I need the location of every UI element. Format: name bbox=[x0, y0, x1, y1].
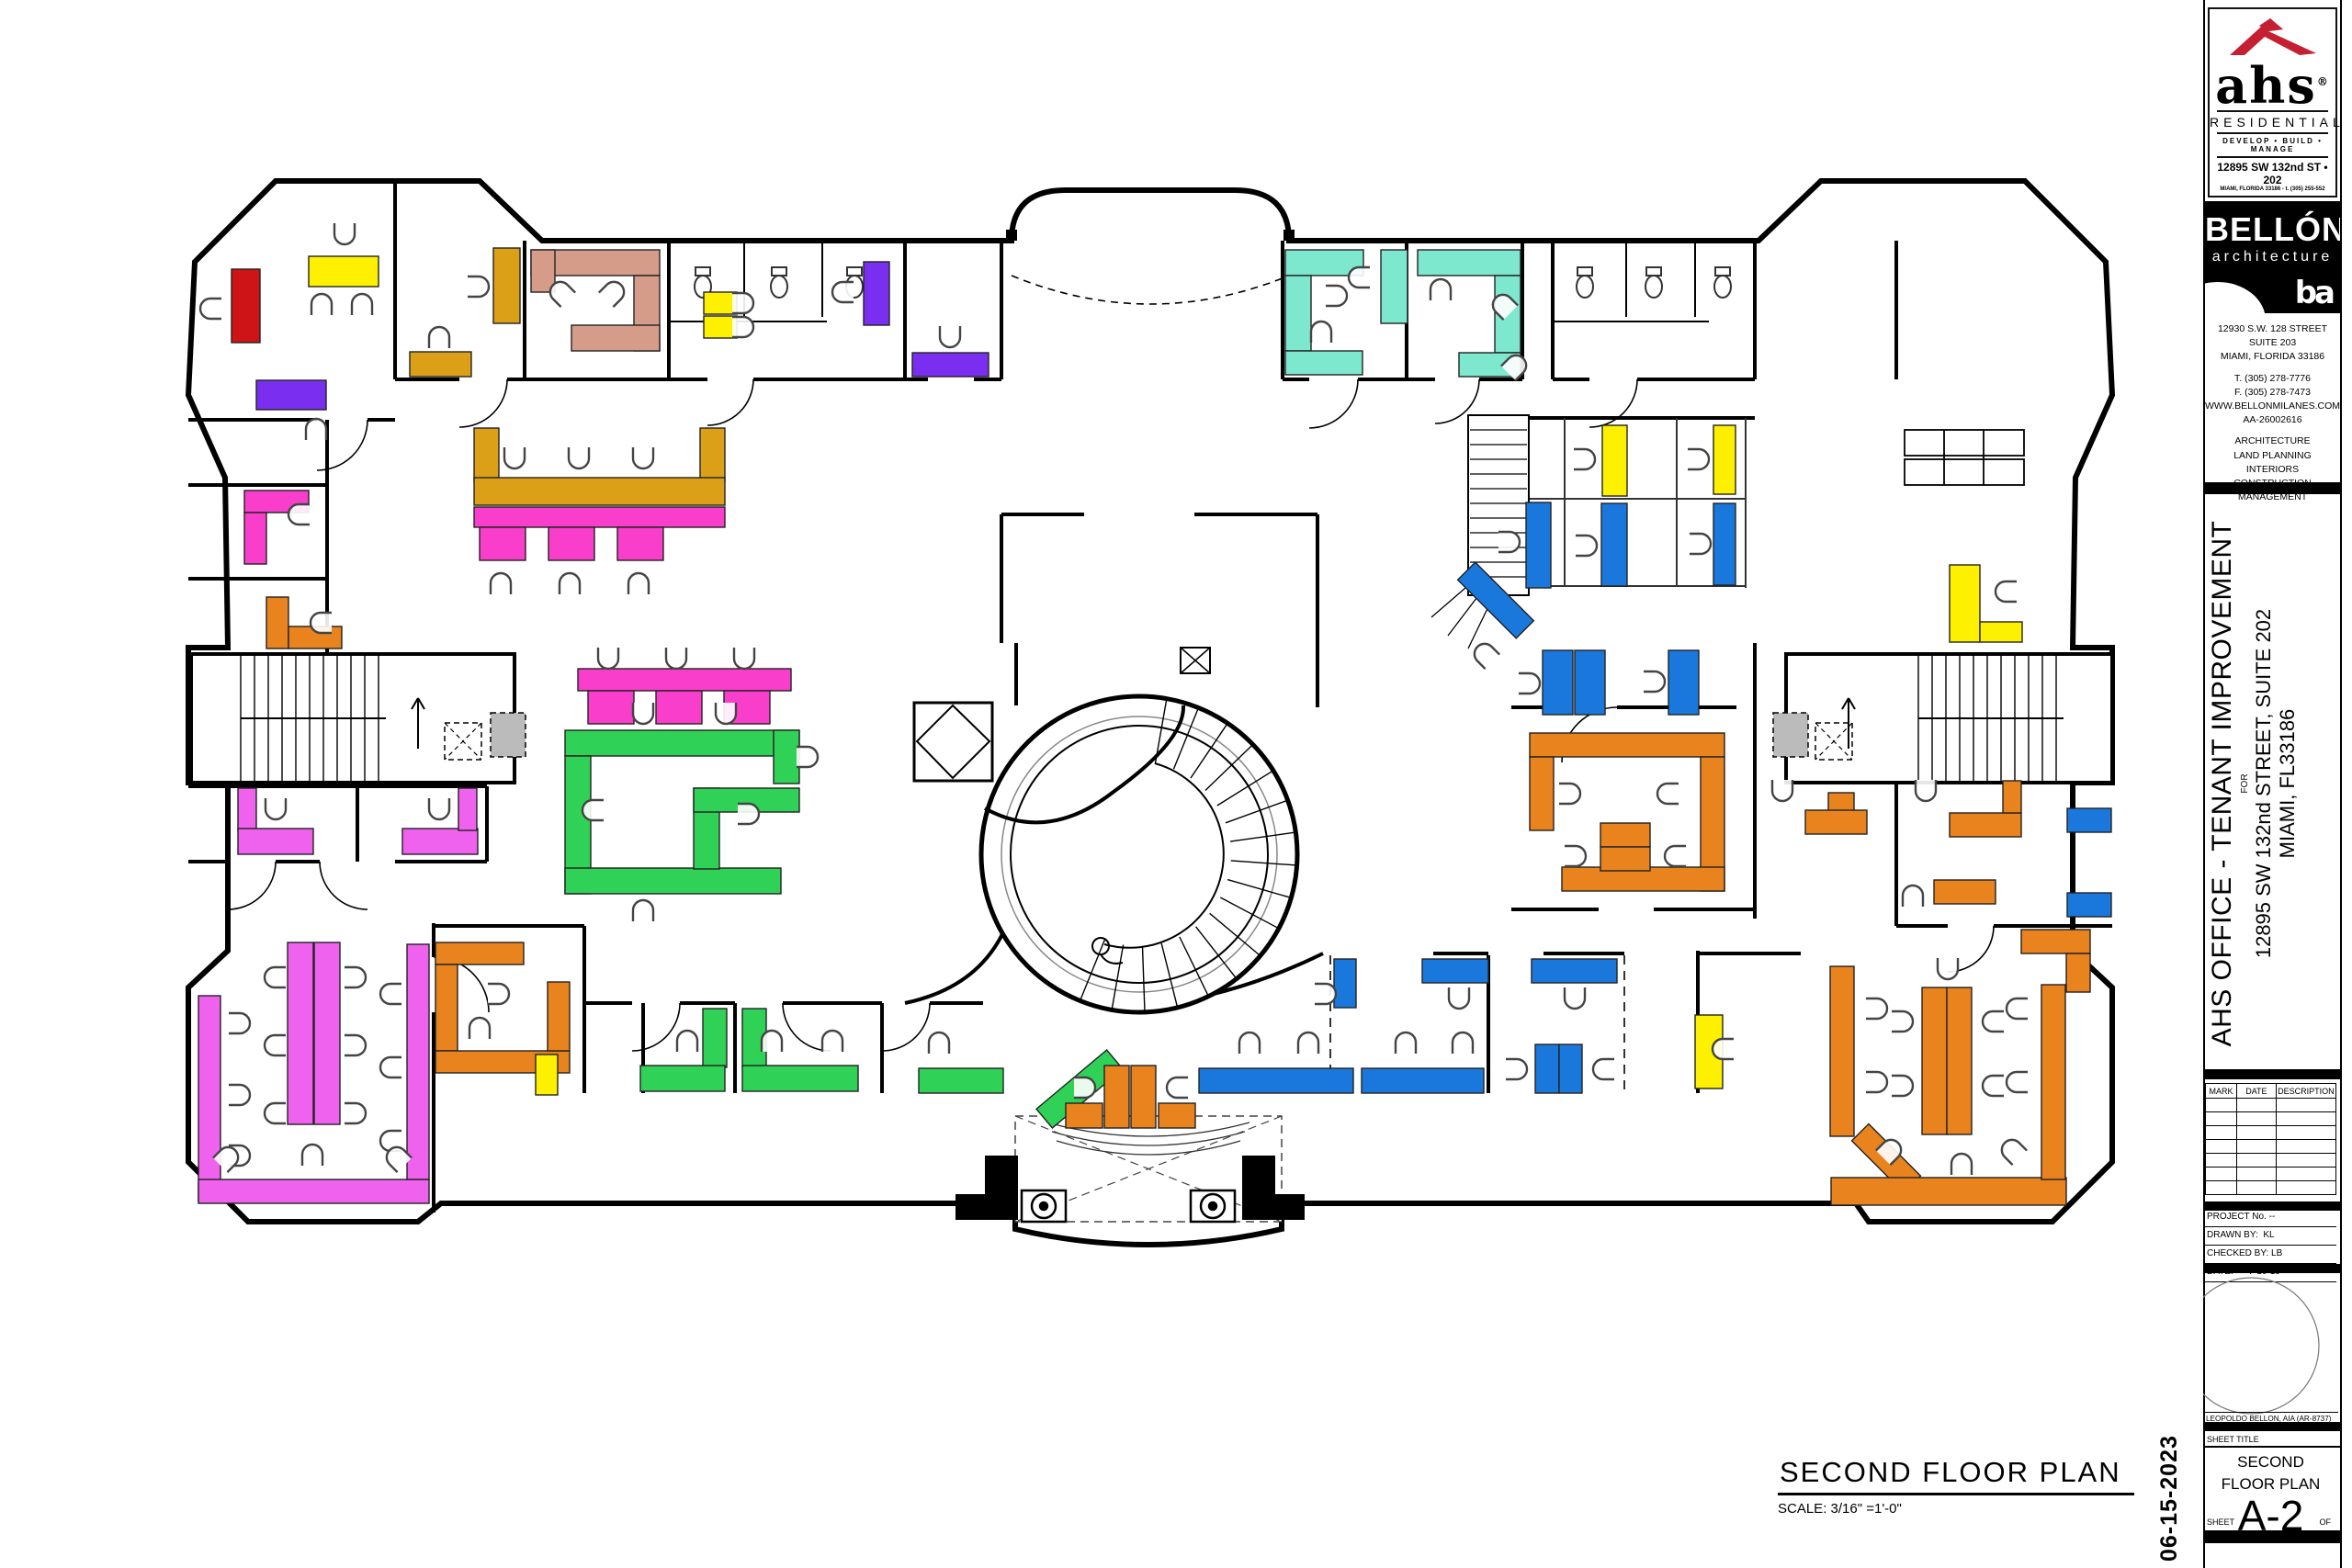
firm-subtitle: architecture bbox=[2205, 249, 2340, 265]
furniture-desk bbox=[1947, 987, 1972, 1134]
chair bbox=[429, 327, 449, 348]
chair bbox=[1396, 1032, 1416, 1054]
furniture-desk bbox=[256, 380, 326, 410]
ahs-brand: ahs® bbox=[2210, 65, 2335, 107]
chair bbox=[1349, 267, 1370, 288]
firm-svc3: INTERIORS bbox=[2205, 463, 2340, 477]
chair bbox=[429, 798, 449, 819]
revision-row bbox=[2206, 1168, 2336, 1181]
furniture-desk bbox=[244, 513, 266, 564]
revision-col-description: DESCRIPTION bbox=[2276, 1084, 2335, 1099]
furniture-desk bbox=[288, 942, 313, 1124]
chair bbox=[1315, 984, 1336, 1004]
furniture-desk bbox=[919, 1068, 1003, 1093]
furniture-desk bbox=[700, 428, 725, 481]
chair bbox=[1239, 1032, 1260, 1054]
ahs-logo: ahs® RESIDENTIAL DEVELOP • BUILD • MANAG… bbox=[2208, 7, 2337, 197]
chair bbox=[1951, 1154, 1972, 1175]
chair bbox=[200, 299, 221, 319]
chair bbox=[345, 1035, 366, 1055]
furniture-desk bbox=[1526, 502, 1551, 588]
furniture-desk bbox=[1532, 959, 1617, 983]
bellon-logo: BELLÓN architecture ba bbox=[2205, 201, 2340, 313]
ahs-tagline: DEVELOP • BUILD • MANAGE bbox=[2210, 137, 2335, 153]
chair bbox=[1498, 532, 1520, 552]
furniture-desk bbox=[1830, 966, 1854, 1136]
project-number: PROJECT No. -- bbox=[2205, 1209, 2336, 1227]
furniture-desk bbox=[2067, 893, 2111, 917]
chair bbox=[1690, 534, 1711, 554]
print-date: 06-15-2023 bbox=[2156, 1435, 2183, 1562]
firm-svc1: ARCHITECTURE bbox=[2205, 434, 2340, 448]
furniture-desk bbox=[2041, 985, 2065, 1179]
chair bbox=[1866, 1072, 1887, 1092]
chair bbox=[628, 573, 649, 594]
furniture-desk bbox=[474, 478, 725, 505]
firm-web: WWW.BELLONMILANES.COM bbox=[2205, 400, 2340, 413]
furniture-desk bbox=[238, 829, 313, 854]
furniture-desk bbox=[402, 829, 478, 854]
furniture-desk bbox=[238, 788, 256, 830]
divider-bar bbox=[2203, 1264, 2340, 1273]
chair bbox=[1983, 1076, 2004, 1096]
revision-row bbox=[2206, 1181, 2336, 1195]
sheet-label: SHEET bbox=[2207, 1517, 2234, 1527]
furniture-desk bbox=[617, 527, 663, 560]
furniture-desk bbox=[565, 730, 799, 756]
furniture-desk bbox=[1362, 1068, 1484, 1093]
chair bbox=[1644, 671, 1665, 692]
chair bbox=[1565, 987, 1585, 1009]
furniture-desk bbox=[480, 527, 526, 560]
furniture-desk bbox=[2021, 930, 2090, 953]
chair bbox=[1713, 1039, 1734, 1059]
revision-row bbox=[2206, 1154, 2336, 1168]
firm-fax: F. (305) 278-7473 bbox=[2205, 386, 2340, 400]
revision-col-date: DATE bbox=[2237, 1084, 2277, 1099]
furniture-desk bbox=[1950, 813, 2021, 837]
chair bbox=[1449, 987, 1469, 1009]
chair bbox=[633, 900, 653, 921]
chair bbox=[732, 317, 753, 337]
chair bbox=[302, 1145, 322, 1166]
furniture-desk bbox=[1922, 987, 1947, 1134]
project-address1: 12895 SW 132nd STREET, SUITE 202 bbox=[2252, 500, 2276, 1067]
chair bbox=[1298, 1032, 1318, 1054]
chair bbox=[1326, 286, 1347, 306]
furniture-desk bbox=[1422, 959, 1488, 983]
furniture-desk bbox=[571, 325, 660, 351]
furniture-desk bbox=[2067, 808, 2111, 832]
checked-by: CHECKED BY: LB bbox=[2205, 1246, 2336, 1264]
stairwell-left bbox=[191, 654, 526, 783]
furniture-desk bbox=[548, 527, 594, 560]
furniture-desk bbox=[1600, 823, 1650, 847]
chair bbox=[468, 276, 489, 297]
furniture-desk bbox=[435, 942, 524, 964]
chair bbox=[762, 1031, 782, 1052]
furniture-desk bbox=[407, 944, 429, 1179]
chair bbox=[1916, 780, 1936, 801]
furniture-desk bbox=[656, 691, 702, 724]
chair bbox=[1657, 784, 1679, 804]
firm-contact: 12930 S.W. 128 STREET SUITE 203 MIAMI, F… bbox=[2205, 313, 2340, 505]
project-title: AHS OFFICE - TENANT IMPROVEMENT bbox=[2207, 500, 2238, 1067]
chair bbox=[1688, 449, 1709, 469]
furniture-desk bbox=[565, 868, 781, 894]
furniture-desk bbox=[536, 1055, 558, 1095]
project-address2: MIAMI, FL33186 bbox=[2276, 500, 2300, 1067]
spiral-stair bbox=[981, 696, 1297, 1012]
furniture-desk bbox=[704, 316, 737, 338]
drawing-scale: SCALE: 3/16" =1'-0" bbox=[1778, 1501, 2134, 1517]
furniture-desk bbox=[1602, 425, 1627, 496]
sheet-title-label: SHEET TITLE bbox=[2205, 1433, 2340, 1448]
furniture-desk bbox=[774, 730, 799, 784]
chair bbox=[1311, 321, 1331, 343]
chair bbox=[1574, 449, 1595, 469]
furniture-desk bbox=[2066, 953, 2090, 992]
chair bbox=[1430, 279, 1451, 300]
chair bbox=[1074, 1077, 1095, 1098]
chair bbox=[265, 1035, 286, 1055]
chair bbox=[1938, 958, 1958, 979]
chair bbox=[633, 447, 653, 468]
chair bbox=[1559, 784, 1580, 804]
furniture-desk bbox=[912, 353, 989, 377]
furniture-desk bbox=[232, 269, 260, 343]
furniture-desk bbox=[1600, 847, 1650, 871]
chair bbox=[598, 648, 618, 669]
drawing-sheet: SECOND FLOOR PLAN SCALE: 3/16" =1'-0" 06… bbox=[0, 0, 2352, 1568]
firm-svc2: LAND PLANNING bbox=[2205, 449, 2340, 463]
chair bbox=[1565, 846, 1586, 866]
furniture-desk bbox=[1530, 757, 1554, 830]
chair bbox=[633, 703, 653, 724]
furniture-desk bbox=[1713, 503, 1736, 585]
furniture-desk bbox=[435, 964, 458, 1051]
chair bbox=[1983, 1011, 2004, 1032]
furniture-desk bbox=[588, 691, 634, 724]
furniture-desk bbox=[198, 1179, 429, 1203]
furniture-desk bbox=[1530, 733, 1724, 757]
chair bbox=[311, 613, 332, 633]
chair bbox=[1453, 1032, 1473, 1054]
furniture-desk bbox=[1131, 1066, 1156, 1128]
furniture-desk bbox=[1601, 503, 1627, 586]
chair bbox=[352, 294, 372, 315]
chair bbox=[569, 447, 589, 468]
chair bbox=[345, 967, 366, 987]
furniture-desk bbox=[704, 292, 737, 314]
chair bbox=[832, 282, 854, 302]
furniture-desk bbox=[548, 982, 570, 1051]
furniture-desk bbox=[1104, 1066, 1129, 1128]
furniture-desk bbox=[1575, 650, 1605, 715]
chair bbox=[1576, 536, 1597, 556]
furniture-desk bbox=[410, 352, 471, 377]
chair bbox=[469, 1018, 490, 1039]
chair bbox=[1519, 673, 1540, 694]
furniture-desk bbox=[2003, 781, 2021, 813]
furniture-desk bbox=[640, 1066, 725, 1091]
project-title-block: AHS OFFICE - TENANT IMPROVEMENT FOR 1289… bbox=[2207, 500, 2300, 1067]
chair bbox=[666, 648, 686, 669]
chair bbox=[311, 294, 332, 315]
chair bbox=[334, 223, 355, 244]
firm-phone: T. (305) 278-7776 bbox=[2205, 372, 2340, 386]
furniture-desk bbox=[1828, 793, 1854, 811]
chair bbox=[2007, 1072, 2028, 1092]
furniture-desk bbox=[1381, 250, 1408, 323]
chair bbox=[940, 326, 960, 347]
furniture-desk bbox=[1066, 1103, 1102, 1128]
stamp-area bbox=[2203, 1273, 2338, 1416]
chair bbox=[1506, 1059, 1527, 1079]
chair bbox=[716, 703, 736, 724]
furniture-desk bbox=[1980, 622, 2022, 642]
furniture-desk bbox=[266, 597, 288, 649]
furniture-desk bbox=[1805, 810, 1867, 834]
chair bbox=[504, 447, 525, 468]
divider-bar bbox=[2203, 1530, 2340, 1543]
revision-col-mark: MARK bbox=[2206, 1084, 2237, 1099]
project-for-label: FOR bbox=[2240, 500, 2250, 1067]
chair bbox=[265, 1103, 286, 1123]
furniture-desk bbox=[1831, 1178, 2066, 1205]
furniture-desk bbox=[1285, 276, 1311, 351]
drawing-title-block: SECOND FLOOR PLAN SCALE: 3/16" =1'-0" bbox=[1778, 1456, 2134, 1517]
furniture-desk bbox=[1543, 650, 1573, 715]
divider-bar bbox=[2203, 1422, 2340, 1431]
revision-row bbox=[2206, 1112, 2336, 1126]
furniture-desk bbox=[1535, 1044, 1559, 1093]
chair bbox=[1996, 581, 2017, 602]
furniture-desk bbox=[703, 1009, 727, 1067]
furniture-desk bbox=[1713, 425, 1736, 494]
chair bbox=[380, 984, 401, 1004]
ahs-address1: 12895 SW 132nd ST • 202 bbox=[2210, 161, 2335, 186]
chair bbox=[306, 419, 326, 440]
chair bbox=[2007, 998, 2028, 1019]
chair bbox=[288, 504, 310, 525]
chair bbox=[560, 573, 580, 594]
firm-address2: SUITE 203 bbox=[2205, 336, 2340, 350]
furniture-desk bbox=[1934, 880, 1996, 904]
chair bbox=[229, 1013, 250, 1033]
chair bbox=[1866, 998, 1887, 1019]
furniture-desk bbox=[458, 788, 477, 830]
furniture-desk bbox=[1418, 250, 1521, 276]
chair bbox=[929, 1032, 949, 1054]
furniture-desk bbox=[1668, 650, 1699, 715]
furniture-desk bbox=[1559, 1044, 1582, 1093]
furniture-desk bbox=[1199, 1068, 1353, 1093]
chair bbox=[738, 804, 759, 824]
firm-monogram-icon: ba bbox=[2295, 275, 2333, 311]
chair bbox=[491, 573, 511, 594]
firm-name: BELLÓN bbox=[2205, 201, 2340, 249]
furniture-desk bbox=[1950, 565, 1980, 642]
furniture-desk bbox=[474, 428, 499, 481]
ahs-division: RESIDENTIAL bbox=[2210, 115, 2335, 130]
chair bbox=[1665, 846, 1686, 866]
furniture-desk bbox=[314, 942, 340, 1124]
divider-bar bbox=[2203, 482, 2340, 494]
revision-table: MARK DATE DESCRIPTION bbox=[2205, 1083, 2336, 1195]
chair bbox=[1892, 1076, 1913, 1096]
chair bbox=[732, 293, 753, 313]
chair bbox=[1892, 1011, 1913, 1032]
chair bbox=[734, 648, 754, 669]
revision-row bbox=[2206, 1126, 2336, 1140]
chair bbox=[582, 800, 604, 820]
firm-address3: MIAMI, FLORIDA 33186 bbox=[2205, 350, 2340, 364]
sheet-title-line1: SECOND bbox=[2205, 1453, 2336, 1472]
sheet-title-line2: FLOOR PLAN bbox=[2205, 1475, 2336, 1494]
firm-license: AA-26002616 bbox=[2205, 413, 2340, 427]
ahs-address2: MIAMI, FLORIDA 33186 - t. (305) 255-552 bbox=[2210, 186, 2335, 196]
revision-body bbox=[2206, 1099, 2336, 1195]
chair bbox=[822, 1031, 842, 1052]
firm-address1: 12930 S.W. 128 STREET bbox=[2205, 322, 2340, 336]
floor-plan bbox=[0, 0, 2352, 1568]
bellon-curve-decoration bbox=[2205, 282, 2266, 313]
furniture-desk bbox=[474, 507, 725, 527]
furniture-desk bbox=[1334, 959, 1356, 1008]
stairwell-right bbox=[1773, 654, 2112, 783]
revision-row bbox=[2206, 1099, 2336, 1112]
chair bbox=[797, 747, 818, 767]
divider-bar bbox=[2203, 1069, 2340, 1079]
chair bbox=[1772, 780, 1792, 801]
chair bbox=[265, 967, 286, 987]
furniture-desk bbox=[864, 262, 889, 325]
chair bbox=[1593, 1059, 1614, 1079]
furniture-desk bbox=[1159, 1103, 1195, 1128]
drawn-by: DRAWN BY: KL bbox=[2205, 1227, 2336, 1246]
of-label: OF bbox=[2320, 1517, 2332, 1527]
chair bbox=[229, 1085, 250, 1105]
furniture-desk bbox=[1285, 351, 1363, 375]
stamp-circle bbox=[2203, 1273, 2338, 1416]
chair bbox=[380, 1057, 401, 1077]
revision-row bbox=[2206, 1140, 2336, 1154]
chair bbox=[1167, 1077, 1188, 1098]
chair bbox=[488, 984, 509, 1004]
chair bbox=[1903, 886, 1923, 907]
chair bbox=[266, 798, 286, 819]
furniture-desk bbox=[309, 256, 379, 287]
chair bbox=[677, 1031, 697, 1052]
chair bbox=[345, 1103, 366, 1123]
furniture-desk bbox=[493, 248, 520, 323]
furniture-desk bbox=[198, 996, 220, 1201]
drawing-title: SECOND FLOOR PLAN bbox=[1778, 1456, 2134, 1495]
furniture-desk bbox=[742, 1066, 858, 1091]
furniture-desk bbox=[578, 669, 791, 691]
ahs-roof-icon bbox=[2222, 13, 2324, 61]
sheet-of-row: SHEET OF bbox=[2205, 1517, 2336, 1527]
